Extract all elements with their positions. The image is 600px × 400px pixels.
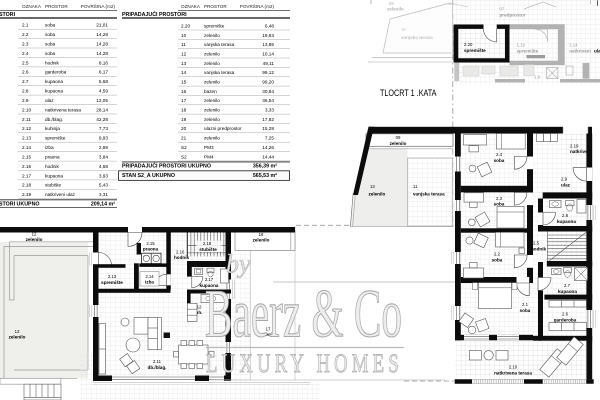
svg-text:spremište: spremište [101,280,123,285]
svg-text:hodnik: hodnik [174,255,190,260]
svg-text:14,44: 14,44 [262,154,274,159]
svg-text:izba: izba [145,280,154,285]
svg-text:soba: soba [492,257,503,262]
svg-text:17,82: 17,82 [262,117,274,122]
svg-text:2.10: 2.10 [509,365,518,370]
svg-text:TLOCRT 1 .KATA: TLOCRT 1 .KATA [380,88,437,99]
svg-text:15: 15 [181,80,187,85]
svg-text:3,31: 3,31 [99,192,109,197]
svg-text:hodnik: hodnik [45,164,59,169]
svg-text:19: 19 [181,117,187,122]
svg-text:vanjska terasa: vanjska terasa [401,35,433,40]
svg-text:3,84: 3,84 [99,155,109,160]
svg-text:zelenilo: zelenilo [204,51,220,56]
svg-text:99,20: 99,20 [262,80,274,85]
svg-text:14,26: 14,26 [262,145,274,150]
svg-text:36,54: 36,54 [262,98,274,103]
svg-text:2.7: 2.7 [564,283,571,288]
svg-text:STORI UKUPNO: STORI UKUPNO [0,201,40,207]
svg-text:OZNAKA: OZNAKA [22,4,42,9]
svg-text:2.8: 2.8 [22,89,29,94]
svg-text:565,53 m²: 565,53 m² [253,173,277,179]
svg-text:9,93: 9,93 [99,136,109,141]
svg-text:19,53: 19,53 [262,33,274,38]
svg-text:356,39 m²: 356,39 m² [253,164,277,170]
svg-text:PRIPADAJUĆI PROSTORI UKUPNO: PRIPADAJUĆI PROSTORI UKUPNO [122,162,211,170]
svg-text:stubište: stubište [45,183,62,188]
svg-text:kupaona: kupaona [45,173,63,178]
svg-text:spremište: spremište [517,49,539,54]
svg-text:2,89: 2,89 [99,145,109,150]
svg-text:PM3: PM3 [204,145,214,150]
svg-text:8,16: 8,16 [99,60,109,65]
svg-text:4,58: 4,58 [99,164,109,169]
svg-text:2.7: 2.7 [22,79,29,84]
svg-text:09: 09 [396,135,401,140]
svg-text:15,28: 15,28 [262,126,274,131]
svg-text:zelenilo: zelenilo [9,334,26,339]
svg-text:praona: praona [143,247,159,252]
svg-text:kupaona: kupaona [45,79,63,84]
svg-text:1.9: 1.9 [534,75,541,80]
svg-text:7,73: 7,73 [99,126,109,131]
svg-text:ula: ula [594,49,600,54]
svg-text:2.13: 2.13 [108,274,117,279]
svg-text:16: 16 [401,27,406,32]
svg-text:2.10: 2.10 [22,107,32,112]
svg-text:hodnik: hodnik [45,60,59,65]
svg-text:18: 18 [259,232,264,237]
svg-text:209,14 m²: 209,14 m² [91,201,115,207]
svg-text:LUXURY HOMES: LUXURY HOMES [206,349,403,378]
svg-text:2.5: 2.5 [533,241,540,246]
svg-text:2.11: 2.11 [153,359,162,364]
svg-text:zelenilo: zelenilo [369,192,386,197]
svg-text:soba: soba [45,41,56,46]
svg-text:2.2: 2.2 [22,32,29,37]
svg-text:2.3: 2.3 [22,41,29,46]
svg-text:ulaz: ulaz [561,182,571,187]
svg-text:zelenilo: zelenilo [204,33,220,38]
svg-text:17: 17 [181,98,187,103]
svg-text:2.6: 2.6 [22,70,29,75]
svg-text:2.12: 2.12 [22,126,32,131]
svg-text:OZNAKA: OZNAKA [181,4,201,9]
svg-text:2.4: 2.4 [22,51,29,56]
svg-text:13,85: 13,85 [262,42,274,47]
svg-text:30,84: 30,84 [262,89,274,94]
svg-text:S2: S2 [181,145,187,150]
svg-text:14,28: 14,28 [96,41,108,46]
svg-text:soba: soba [45,32,56,37]
svg-text:5,68: 5,68 [99,79,109,84]
svg-text:soba: soba [494,201,505,206]
svg-text:2.1: 2.1 [522,302,529,307]
svg-text:PRIPADAJUĆI PROSTORI: PRIPADAJUĆI PROSTORI [122,10,187,18]
svg-text:6,48: 6,48 [265,23,275,28]
svg-text:07: 07 [500,7,505,12]
svg-text:08: 08 [389,1,394,6]
svg-text:2.18: 2.18 [22,183,32,188]
svg-text:13: 13 [370,184,375,189]
svg-text:5,43: 5,43 [99,183,109,188]
svg-text:zelenilo: zelenilo [204,98,220,103]
svg-text:soba: soba [520,308,531,313]
svg-text:soba: soba [494,158,505,163]
svg-text:12: 12 [181,51,187,56]
svg-text:99,12: 99,12 [262,70,274,75]
svg-text:ulaz: ulaz [45,98,54,103]
svg-text:db./blag.: db./blag. [148,365,167,370]
svg-text:1.14: 1.14 [569,43,578,48]
svg-text:2.16: 2.16 [176,250,185,255]
svg-text:2.8: 2.8 [562,213,569,218]
svg-text:3,93: 3,93 [99,173,109,178]
svg-text:13: 13 [15,329,20,334]
svg-text:zelenilo: zelenilo [253,238,270,243]
svg-text:zelenilo: zelenilo [204,136,220,141]
svg-text:Baerz & Co: Baerz & Co [205,276,402,352]
svg-text:2.15: 2.15 [146,241,155,246]
svg-text:2.4: 2.4 [496,152,503,157]
svg-text:2.13: 2.13 [22,136,32,141]
svg-text:STAN S2_A UKUPNO: STAN S2_A UKUPNO [122,173,175,179]
svg-text:PROSTOR: PROSTOR [204,4,227,9]
svg-text:STORI: STORI [0,12,16,18]
svg-text:11: 11 [413,184,418,189]
svg-text:spremište: spremište [45,136,66,141]
svg-text:POVRŠINA (m2): POVRŠINA (m2) [81,3,116,9]
svg-text:13: 13 [181,61,187,66]
svg-text:stubište: stubište [199,247,217,252]
svg-text:PM4: PM4 [204,154,214,159]
svg-text:zelenilo: zelenilo [26,237,43,242]
svg-text:2.15: 2.15 [22,155,32,160]
svg-text:db./blag.: db./blag. [45,117,63,122]
svg-text:kupaona: kupaona [558,289,577,294]
svg-text:14: 14 [181,70,187,75]
svg-text:10,14: 10,14 [262,51,274,56]
svg-text:49,11: 49,11 [263,61,275,66]
svg-text:14,28: 14,28 [96,51,108,56]
svg-text:natkriveni ulaz: natkriveni ulaz [45,192,76,197]
svg-text:vanjska terasa: vanjska terasa [204,42,235,47]
svg-text:bazen: bazen [204,89,217,94]
svg-text:3,33: 3,33 [265,108,275,113]
svg-text:21: 21 [181,136,187,141]
svg-text:zelenilo: zelenilo [204,80,220,85]
svg-text:by: by [226,250,251,279]
svg-text:2.17: 2.17 [22,173,32,178]
svg-text:4,59: 4,59 [99,89,109,94]
svg-text:spremište: spremište [464,48,486,53]
svg-text:garderoba: garderoba [554,317,577,322]
svg-text:2.16: 2.16 [22,164,32,169]
svg-text:7,25: 7,25 [265,136,275,141]
svg-text:2.20: 2.20 [464,42,473,47]
svg-text:12,05: 12,05 [96,98,108,103]
svg-text:S2: S2 [181,154,187,159]
svg-text:2.1: 2.1 [22,23,29,28]
svg-text:2.14: 2.14 [22,145,32,150]
svg-text:natkrivena terasa: natkrivena terasa [494,370,532,375]
svg-text:natkriveni: natkriveni [569,49,591,54]
svg-text:PROSTOR: PROSTOR [45,4,68,9]
svg-text:2.20: 2.20 [181,23,191,28]
svg-text:ulazni predprostor: ulazni predprostor [204,126,242,131]
svg-text:izba: izba [45,145,54,150]
svg-text:spremište: spremište [204,23,225,28]
svg-text:11: 11 [181,42,186,47]
svg-text:soba: soba [45,23,56,28]
svg-text:6,17: 6,17 [99,70,109,75]
svg-text:2.9: 2.9 [561,177,568,182]
svg-text:2.11: 2.11 [22,117,31,122]
svg-text:predprostor: predprostor [500,13,526,18]
svg-text:1.19: 1.19 [517,43,526,48]
svg-text:2.9: 2.9 [22,98,29,103]
svg-text:kupaona: kupaona [557,219,576,224]
svg-text:2.19: 2.19 [22,192,32,197]
svg-text:10: 10 [181,33,187,38]
svg-text:18: 18 [181,108,187,113]
svg-text:20: 20 [181,126,187,131]
svg-text:zelenilo: zelenilo [204,61,220,66]
svg-text:2.5: 2.5 [22,60,29,65]
svg-text:2.19: 2.19 [570,144,579,149]
svg-text:praona: praona [45,155,60,160]
svg-text:kupaona: kupaona [45,89,63,94]
svg-text:vanjska terasa: vanjska terasa [413,192,445,197]
svg-text:2.18: 2.18 [203,241,212,246]
svg-text:POVRŠINA (m2): POVRŠINA (m2) [240,3,275,9]
svg-text:16: 16 [181,89,187,94]
svg-text:kuhinja: kuhinja [45,126,60,131]
svg-text:14,28: 14,28 [96,32,108,37]
svg-text:28,14: 28,14 [96,107,108,112]
svg-text:vanjska terasa: vanjska terasa [204,70,235,75]
svg-text:natkrivena terasa: natkrivena terasa [45,107,81,112]
svg-text:soba: soba [45,51,56,56]
svg-text:zelenilo: zelenilo [204,108,220,113]
svg-text:2.6: 2.6 [562,312,569,317]
svg-text:2.14: 2.14 [145,274,154,279]
svg-text:zelenilo: zelenilo [390,141,407,146]
svg-text:zelenilo: zelenilo [204,117,220,122]
svg-text:21,01: 21,01 [96,23,108,28]
svg-text:42,28: 42,28 [96,117,108,122]
svg-text:2.3: 2.3 [496,196,503,201]
svg-text:2.2: 2.2 [494,252,501,257]
svg-text:zelenilo: zelenilo [387,7,404,12]
svg-text:garderoba: garderoba [45,70,67,75]
svg-text:hodnik: hodnik [531,246,547,251]
